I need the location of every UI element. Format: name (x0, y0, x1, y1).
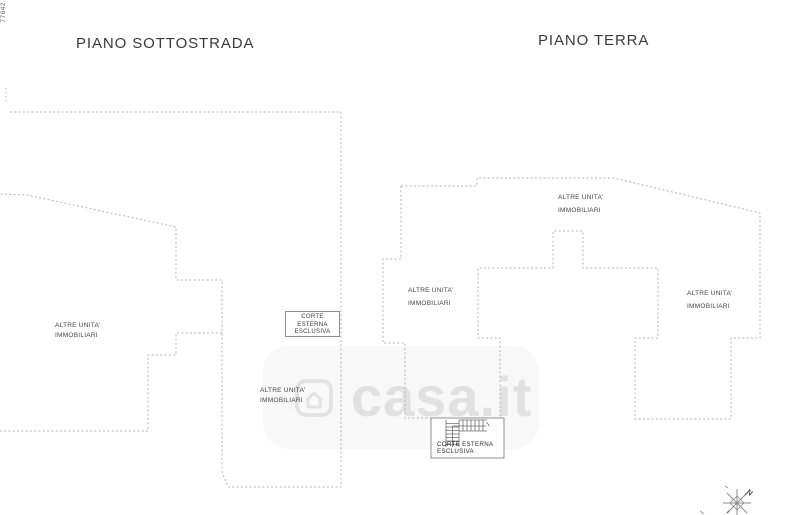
label-line: ALTRE UNITA' (687, 290, 733, 303)
label-altre-unita-sottostrada-left: ALTRE UNITA' IMMOBILIARI (55, 322, 101, 342)
label-line: IMMOBILIARI (260, 397, 306, 407)
label-line: IMMOBILIARI (558, 207, 604, 220)
title-piano-sottostrada: PIANO SOTTOSTRADA (76, 35, 254, 52)
label-line: ESCLUSIVA (437, 448, 493, 455)
label-line: IMMOBILIARI (55, 332, 101, 342)
corte-esterna-esclusiva-box: CORTE ESTERNA ESCLUSIVA (285, 311, 340, 337)
floor-plan-page: casa.it (0, 0, 800, 515)
label-line: CORTE ESTERNA (437, 441, 493, 448)
plan-linework (0, 0, 800, 515)
label-altre-unita-sottostrada-right: ALTRE UNITA' IMMOBILIARI (260, 387, 306, 407)
label-line: ESTERNA (286, 322, 339, 330)
label-line: IMMOBILIARI (687, 303, 733, 316)
label-line: ALTRE UNITA' (260, 387, 306, 397)
label-altre-unita-terra-top: ALTRE UNITA' IMMOBILIARI (558, 194, 604, 220)
sheet-code: 77642 (0, 2, 7, 23)
compass-icon (700, 486, 751, 515)
label-line: CORTE (286, 314, 339, 322)
label-line: ESCLUSIVA (286, 329, 339, 337)
corte-esterna-bottom-label: CORTE ESTERNA ESCLUSIVA (437, 441, 493, 455)
title-piano-terra: PIANO TERRA (538, 32, 649, 49)
label-line: ALTRE UNITA' (558, 194, 604, 207)
label-altre-unita-terra-right: ALTRE UNITA' IMMOBILIARI (687, 290, 733, 316)
label-line: ALTRE UNITA' (55, 322, 101, 332)
label-line: ALTRE UNITA' (408, 287, 454, 300)
plan-sottostrada-outline (0, 112, 341, 487)
label-line: IMMOBILIARI (408, 300, 454, 313)
label-altre-unita-terra-left: ALTRE UNITA' IMMOBILIARI (408, 287, 454, 313)
plan-sottostrada-inner-step (0, 333, 222, 431)
